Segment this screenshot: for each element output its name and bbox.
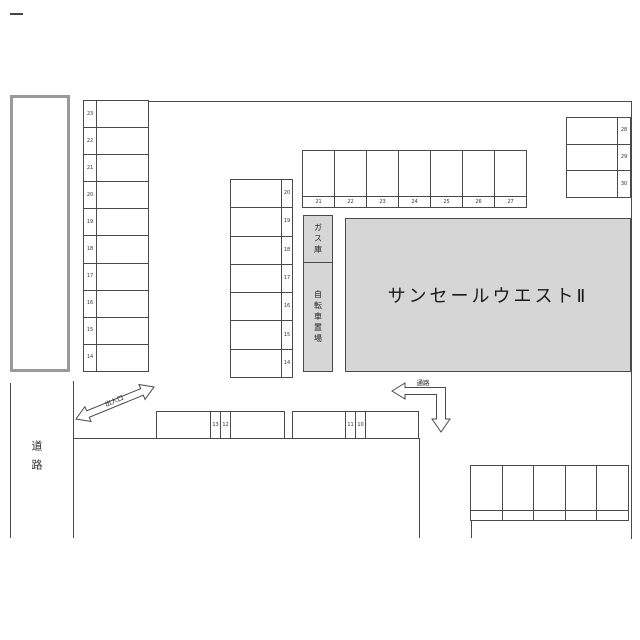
- parking-space: 23: [366, 150, 399, 208]
- space-number: 29: [617, 145, 630, 171]
- road-label: 道路: [28, 440, 44, 510]
- space-area: [471, 466, 502, 511]
- space-area: [503, 466, 534, 511]
- parking-space: 14: [83, 344, 149, 372]
- utility-column: ガス庫 自転車置場: [303, 215, 333, 372]
- space-area: [367, 151, 398, 197]
- space-area: [231, 237, 281, 264]
- parking-space: 17: [230, 264, 293, 293]
- passage-arrow-shape: [392, 383, 450, 432]
- space-area: [231, 321, 281, 348]
- space-area: [303, 151, 334, 197]
- space-area: [597, 466, 628, 511]
- road-area: 道路: [24, 440, 48, 510]
- parking-right-column: 282930: [566, 118, 631, 198]
- space-area: [97, 209, 148, 235]
- space-area: [567, 171, 617, 197]
- parking-left-column: 23222120191817161514: [83, 101, 149, 372]
- space-area: [567, 145, 617, 171]
- space-area: [97, 128, 148, 154]
- space-number: 30: [617, 171, 630, 197]
- stub-line: [471, 520, 472, 538]
- parking-space: 18: [230, 236, 293, 265]
- space-number: 21: [84, 155, 97, 181]
- parking-space: 22: [334, 150, 367, 208]
- space-number: 22: [335, 197, 366, 207]
- gas-storage-label: ガス庫: [313, 223, 324, 256]
- road-edge-outer-line: [10, 383, 11, 538]
- space-number: [597, 511, 628, 520]
- parking-space: [596, 465, 629, 521]
- space-area: [97, 345, 148, 371]
- parking-space: [533, 465, 566, 521]
- space-area: [97, 236, 148, 262]
- space-number: 17: [281, 265, 292, 292]
- space-number: 18: [84, 236, 97, 262]
- parking-space: 19: [230, 207, 293, 236]
- parking-space: 24: [398, 150, 431, 208]
- space-number: 16: [84, 291, 97, 317]
- parking-space: 20: [83, 181, 149, 209]
- space-area: [231, 180, 281, 207]
- space-number: 19: [281, 208, 292, 235]
- space-number: 20: [281, 180, 292, 207]
- space-number: [503, 511, 534, 520]
- parking-space: 21: [302, 150, 335, 208]
- corner-mark: [10, 13, 23, 15]
- space-area: [463, 151, 494, 197]
- space-area: [534, 466, 565, 511]
- passage-arrow-icon: 通路: [385, 374, 465, 438]
- left-large-area: [10, 95, 70, 372]
- space-area: [292, 411, 346, 439]
- space-area: [97, 318, 148, 344]
- parking-bottom-strip-left: 1312: [157, 411, 285, 439]
- space-area: [231, 350, 281, 377]
- parking-middle-column: 20191817161514: [230, 180, 293, 378]
- space-area: [231, 208, 281, 235]
- space-number: 18: [281, 237, 292, 264]
- parking-space: 16: [83, 290, 149, 318]
- space-area: [431, 151, 462, 197]
- driveway-right-line: [419, 439, 420, 538]
- space-area: [231, 293, 281, 320]
- space-number: 25: [431, 197, 462, 207]
- right-boundary-line: [631, 101, 632, 539]
- parking-space: 23: [83, 100, 149, 128]
- parking-space: 27: [494, 150, 527, 208]
- building-area: サンセールウエストⅡ: [345, 218, 631, 372]
- space-area: [231, 265, 281, 292]
- space-number: 19: [84, 209, 97, 235]
- bicycle-parking-area: 自転車置場: [304, 263, 332, 371]
- space-number: 14: [281, 350, 292, 377]
- space-number: 22: [84, 128, 97, 154]
- space-number: 15: [84, 318, 97, 344]
- space-area: [97, 291, 148, 317]
- space-number: [471, 511, 502, 520]
- parking-map: 23222120191817161514 20191817161514 2122…: [0, 0, 640, 640]
- space-number: 26: [463, 197, 494, 207]
- parking-space: 25: [430, 150, 463, 208]
- entrance-arrow-icon: 出入口: [68, 376, 168, 431]
- parking-space: [502, 465, 535, 521]
- space-area: [495, 151, 526, 197]
- space-area: [399, 151, 430, 197]
- parking-space: 21: [83, 154, 149, 182]
- space-number: 23: [367, 197, 398, 207]
- parking-space: 15: [83, 317, 149, 345]
- passage-label: 通路: [417, 378, 431, 387]
- space-number: 24: [399, 197, 430, 207]
- space-area: [97, 182, 148, 208]
- space-number: 14: [84, 345, 97, 371]
- gas-storage-area: ガス庫: [304, 216, 332, 263]
- space-area: [230, 411, 285, 439]
- space-number: 17: [84, 264, 97, 290]
- space-number: 16: [281, 293, 292, 320]
- parking-space: 14: [230, 349, 293, 378]
- parking-space: 15: [230, 320, 293, 349]
- parking-space: 30: [566, 170, 631, 198]
- space-number: 15: [281, 321, 292, 348]
- parking-space: 17: [83, 263, 149, 291]
- parking-space: 26: [462, 150, 495, 208]
- parking-space: 29: [566, 144, 631, 172]
- space-number: 21: [303, 197, 334, 207]
- parking-space: [565, 465, 598, 521]
- space-area: [566, 466, 597, 511]
- space-number: [566, 511, 597, 520]
- space-number: 23: [84, 101, 97, 127]
- parking-space: 22: [83, 127, 149, 155]
- parking-space: [470, 465, 503, 521]
- space-area: [97, 264, 148, 290]
- parking-space: 18: [83, 235, 149, 263]
- parking-space: 20: [230, 179, 293, 208]
- parking-space: 28: [566, 117, 631, 145]
- space-area: [97, 155, 148, 181]
- parking-space: 19: [83, 208, 149, 236]
- space-number: 20: [84, 182, 97, 208]
- parking-bottom-right-row: [471, 465, 629, 521]
- space-area: [97, 101, 148, 127]
- space-number: 27: [495, 197, 526, 207]
- space-area: [335, 151, 366, 197]
- parking-space: 16: [230, 292, 293, 321]
- top-boundary-line: [83, 101, 632, 102]
- parking-top-row: 21222324252627: [303, 150, 527, 208]
- space-area: [567, 118, 617, 144]
- space-number: [534, 511, 565, 520]
- bicycle-parking-label: 自転車置場: [313, 290, 324, 345]
- building-name-label: サンセールウエストⅡ: [388, 282, 589, 308]
- space-number: 28: [617, 118, 630, 144]
